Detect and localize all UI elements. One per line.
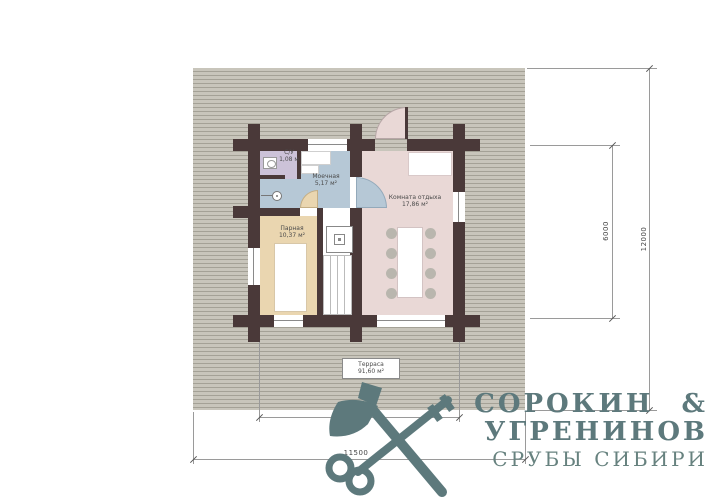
dim-extension: [259, 342, 260, 422]
steam-bench: [274, 243, 307, 312]
dim-line: [649, 68, 650, 410]
dim-extension: [530, 145, 620, 146]
room-label-steam: Парная 10,37 м²: [273, 226, 311, 240]
log-end: [248, 124, 260, 139]
window: [274, 315, 303, 327]
dim-extension: [530, 318, 620, 319]
chair: [386, 248, 397, 259]
room-label-rest: Комната отдыха 17,86 м²: [386, 195, 444, 209]
wall-segment: [347, 139, 375, 151]
wall-segment: [453, 222, 465, 327]
partition: [260, 208, 300, 216]
wall-segment: [453, 139, 465, 192]
chair: [425, 248, 436, 259]
window: [377, 315, 445, 327]
room-area: 1,08 м: [275, 157, 303, 164]
entrance-door-leaf: [405, 107, 408, 139]
log-end: [465, 315, 480, 327]
room-area: 10,37 м²: [273, 233, 311, 240]
logo-line-3: СРУБЫ СИБИРИ: [460, 447, 708, 472]
chair: [425, 268, 436, 279]
log-end: [350, 327, 362, 342]
log-end: [453, 327, 465, 342]
room-area: 91,60 м²: [343, 368, 399, 375]
logo-line-1: СОРОКИН &: [460, 391, 708, 418]
stove-dot: [338, 238, 341, 241]
room-area: 5,17 м²: [305, 181, 347, 188]
shower-head-dot: [276, 195, 278, 197]
dim-label-depth-inner: 6000: [602, 216, 610, 246]
logo-axe-key-icon: [318, 376, 466, 502]
log-end: [233, 206, 248, 218]
log-end: [233, 139, 248, 151]
dim-extension: [193, 412, 194, 464]
chair: [386, 268, 397, 279]
room-label-wash: Моечная 5,17 м²: [305, 174, 347, 188]
room-name: Терраса: [343, 361, 399, 368]
log-end: [465, 139, 480, 151]
log-end: [248, 327, 260, 342]
dim-label-depth-outer: 12000: [640, 221, 648, 257]
chair: [386, 228, 397, 239]
log-end: [350, 124, 362, 139]
room-label-su: С/У 1,08 м: [275, 150, 303, 164]
window: [453, 192, 465, 222]
wall-segment: [303, 315, 377, 327]
wash-bench: [301, 151, 331, 165]
dim-line: [612, 145, 613, 318]
partition: [350, 151, 362, 177]
window: [308, 139, 347, 151]
partition: [260, 175, 285, 179]
logo-line-2: УГРЕНИНОВ: [460, 418, 708, 447]
shower-stem: [261, 195, 272, 196]
steps: [323, 255, 352, 315]
chair: [425, 288, 436, 299]
wall-segment: [248, 285, 260, 327]
rest-sofa: [408, 152, 452, 176]
window: [248, 248, 260, 285]
chair: [386, 288, 397, 299]
logo-wordmark: СОРОКИН & УГРЕНИНОВ СРУБЫ СИБИРИ: [460, 391, 708, 472]
floorplan-canvas: С/У 1,08 м Моечная 5,17 м² Парная 10,37 …: [0, 0, 712, 502]
log-end: [233, 315, 248, 327]
room-area: 17,86 м²: [386, 202, 444, 209]
chair: [425, 228, 436, 239]
log-end: [453, 124, 465, 139]
dining-table: [397, 227, 423, 298]
dim-extension: [527, 68, 657, 69]
wall-segment: [248, 139, 260, 248]
